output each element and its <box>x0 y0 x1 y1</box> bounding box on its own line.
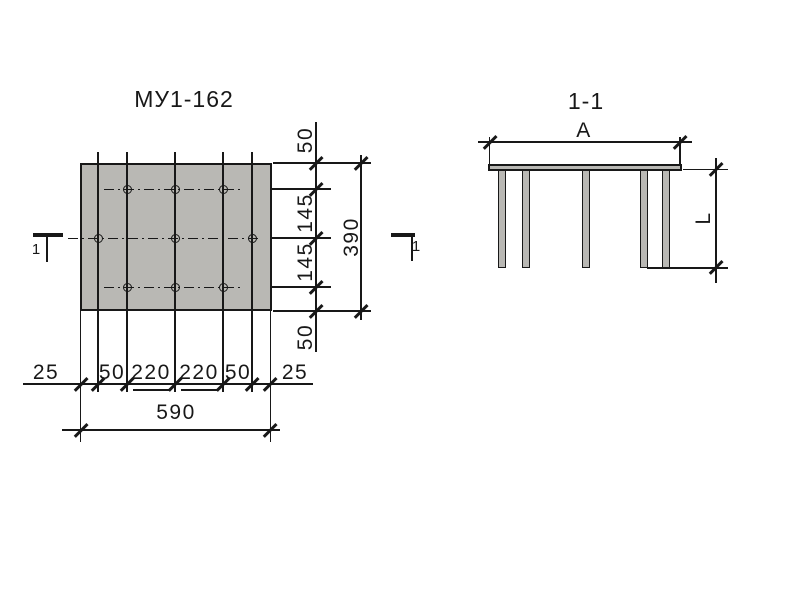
dimension-label: L <box>693 183 715 253</box>
anchor-leg <box>498 170 506 268</box>
extension-line <box>80 311 81 442</box>
anchor-hole <box>171 185 180 194</box>
anchor-leg <box>662 170 670 268</box>
dimension-label: 50 <box>208 362 268 384</box>
anchor-leg <box>522 170 530 268</box>
section-cut-label: 1 <box>408 239 424 254</box>
section-cut-stroke <box>33 233 63 237</box>
dimension-label: 50 <box>295 105 317 175</box>
column-axis-line <box>97 152 98 392</box>
section-cut-label: 1 <box>28 242 44 257</box>
dimension-shelf-line <box>181 389 217 390</box>
dimension-label: 590 <box>146 402 206 424</box>
anchor-leg <box>640 170 648 268</box>
plan-title: МУ1-162 <box>104 87 264 111</box>
extension-line <box>683 169 728 170</box>
section-cut-stem <box>46 237 47 262</box>
dimension-label: 25 <box>16 362 76 384</box>
anchor-leg <box>582 170 590 268</box>
extension-line <box>273 162 371 163</box>
dimension-label: A <box>554 120 614 142</box>
dimension-line <box>62 429 280 430</box>
dimension-label: 145 <box>295 227 317 297</box>
extension-line <box>273 310 371 311</box>
dimension-label: 50 <box>295 302 317 372</box>
anchor-hole <box>219 185 228 194</box>
anchor-hole <box>171 283 180 292</box>
anchor-hole <box>248 234 257 243</box>
column-axis-line <box>251 152 252 392</box>
anchor-hole <box>123 185 132 194</box>
dimension-shelf-line <box>133 389 169 390</box>
section-title: 1-1 <box>546 89 626 113</box>
dimension-label: 390 <box>341 202 363 272</box>
anchor-hole <box>123 283 132 292</box>
anchor-hole <box>171 234 180 243</box>
anchor-hole <box>94 234 103 243</box>
engineering-drawing: МУ1-162 <box>0 0 800 600</box>
anchor-hole <box>219 283 228 292</box>
